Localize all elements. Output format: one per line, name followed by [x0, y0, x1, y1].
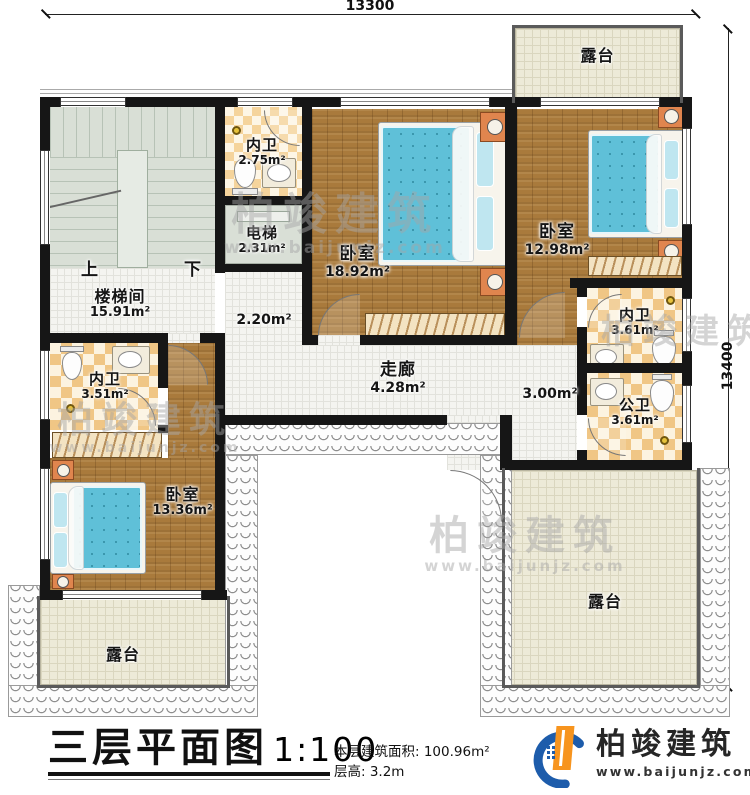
- window: [40, 468, 50, 560]
- wall: [682, 99, 692, 128]
- room-label-hall: 3.00m²: [510, 386, 590, 402]
- logo-url: www.baijunjz.com: [596, 764, 750, 779]
- wall: [202, 590, 227, 600]
- logo-brand: 柏竣建筑: [596, 730, 736, 760]
- room-area: 3.00m²: [510, 386, 590, 402]
- wall: [302, 97, 312, 345]
- lamp-icon: [487, 119, 503, 135]
- roof-tiles: [8, 685, 258, 717]
- room-label-bedroom-left: 卧室 13.36m²: [130, 485, 235, 519]
- wall: [215, 264, 312, 272]
- room-name: 露台: [63, 645, 183, 664]
- wall: [215, 196, 310, 205]
- window: [682, 298, 692, 352]
- bed-blanket: [646, 134, 662, 234]
- room-area: 2.31m²: [222, 242, 302, 256]
- eave-line: [40, 86, 512, 96]
- room-name: 公卫: [600, 396, 670, 414]
- room-area: 15.91m²: [60, 306, 180, 321]
- dimension-line-top: [45, 14, 697, 15]
- room-label-stairwell: 楼梯间 15.91m²: [60, 287, 180, 321]
- room-name: 露台: [545, 592, 665, 611]
- pillow: [53, 532, 68, 568]
- room-name: 露台: [515, 46, 680, 65]
- room-label-bedroom-right: 卧室 12.98m²: [502, 222, 612, 258]
- wardrobe: [52, 432, 162, 458]
- wall: [225, 415, 447, 425]
- shower-icon: [666, 296, 675, 305]
- toilet-icon: [232, 188, 258, 195]
- wall: [158, 425, 168, 433]
- room-name: 楼梯间: [60, 287, 180, 306]
- nightstand: [480, 112, 508, 142]
- parapet: [37, 596, 40, 688]
- wardrobe: [588, 256, 682, 276]
- parapet: [697, 468, 700, 688]
- room-area: 12.98m²: [502, 242, 612, 258]
- wall: [40, 590, 62, 600]
- window: [62, 590, 202, 600]
- wall: [40, 97, 50, 150]
- floor-terrace-right: [505, 470, 697, 685]
- floor-lobby-220: [225, 264, 302, 345]
- parapet: [502, 468, 505, 688]
- room-area: 3.61m²: [600, 414, 670, 428]
- pillow: [664, 140, 679, 180]
- room-name: 电梯: [222, 224, 302, 242]
- room-name: 内卫: [65, 370, 145, 388]
- dimension-right-value: 13400: [720, 336, 736, 396]
- down-text: 下: [178, 260, 208, 280]
- window: [682, 128, 692, 225]
- room-label-lobby: 2.20m²: [228, 312, 300, 328]
- window: [540, 97, 660, 107]
- wall: [505, 97, 517, 345]
- window: [40, 150, 50, 245]
- parapet: [227, 596, 230, 688]
- stair-treads: [148, 157, 215, 268]
- nightstand: [52, 460, 74, 480]
- parapet: [37, 685, 230, 688]
- floor-plan: 13300 13400: [0, 0, 750, 795]
- room-area: 2.75m²: [222, 154, 302, 168]
- floor-hall-300: [512, 345, 577, 470]
- window: [40, 350, 50, 420]
- room-name: 卧室: [300, 244, 415, 264]
- wall: [302, 335, 318, 345]
- wall: [40, 333, 165, 343]
- window: [237, 97, 293, 107]
- roof-tiles: [480, 685, 730, 717]
- bed-blanket: [68, 486, 84, 570]
- window: [340, 97, 490, 107]
- window: [682, 385, 692, 443]
- lamp-icon: [57, 464, 70, 477]
- window: [60, 97, 126, 107]
- lamp-icon: [664, 109, 679, 124]
- plan-info: 本层建筑面积: 100.96m² 层高: 3.2m: [334, 742, 524, 783]
- room-area: 3.51m²: [65, 388, 145, 402]
- title-underline: [48, 772, 330, 776]
- room-area: 3.61m²: [600, 324, 670, 338]
- up-text: 上: [75, 260, 105, 280]
- wall: [293, 97, 340, 107]
- pillow: [664, 188, 679, 228]
- stair-well: [117, 150, 148, 268]
- dimension-top-value: 13300: [300, 0, 440, 14]
- room-label-bath-left: 内卫 3.51m²: [65, 370, 145, 402]
- room-area: 18.92m²: [300, 264, 415, 280]
- stair-treads: [50, 157, 117, 268]
- wall: [215, 333, 225, 600]
- lamp-icon: [487, 274, 503, 290]
- plan-title: 三层平面图: [48, 725, 268, 771]
- floor-terrace-top: [515, 28, 680, 103]
- wall: [40, 420, 50, 468]
- plan-height-info: 层高: 3.2m: [334, 762, 524, 782]
- room-name: 卧室: [502, 222, 612, 242]
- parapet: [502, 685, 700, 688]
- roof-tiles: [225, 423, 512, 455]
- room-label-bath-top: 内卫 2.75m²: [222, 136, 302, 168]
- shower-icon: [66, 404, 75, 413]
- wall: [158, 333, 168, 388]
- room-label-bath-public: 公卫 3.61m²: [600, 396, 670, 428]
- shower-icon: [660, 436, 669, 445]
- room-area: 2.20m²: [228, 312, 300, 328]
- pillow: [53, 492, 68, 528]
- lamp-icon: [57, 576, 69, 588]
- wall: [577, 363, 692, 373]
- room-name: 卧室: [130, 485, 235, 504]
- stair-up-label: 上: [75, 260, 105, 280]
- floor-door-gap: [318, 335, 360, 345]
- nightstand: [658, 104, 684, 128]
- floor-terrace-left: [40, 598, 227, 685]
- parapet: [512, 25, 683, 28]
- room-label-terrace-top: 露台: [515, 46, 680, 65]
- wall: [360, 335, 512, 345]
- wall: [577, 288, 587, 297]
- room-area: 13.36m²: [130, 504, 235, 519]
- room-name: 内卫: [222, 136, 302, 154]
- shower-icon: [232, 126, 241, 135]
- room-label-bath-right: 内卫 3.61m²: [600, 306, 670, 338]
- elevator-car: [237, 211, 290, 222]
- logo-icon: [533, 720, 589, 788]
- wall: [505, 460, 692, 470]
- room-name: 内卫: [600, 306, 670, 324]
- roof-tiles: [700, 468, 730, 717]
- room-label-elevator: 电梯 2.31m²: [222, 224, 302, 256]
- room-label-terrace-left: 露台: [63, 645, 183, 664]
- floor-door-gap: [165, 333, 200, 343]
- title-underline-thin: [48, 779, 330, 780]
- parapet: [680, 25, 683, 103]
- room-name: 走廊: [353, 360, 443, 380]
- plan-title-block: 三层平面图 1:100: [48, 728, 378, 769]
- room-label-terrace-right: 露台: [545, 592, 665, 611]
- stair-down-label: 下: [178, 260, 208, 280]
- wall: [570, 278, 692, 288]
- sink-basin-icon: [118, 351, 142, 368]
- nightstand: [52, 574, 74, 589]
- plan-area-info: 本层建筑面积: 100.96m²: [334, 742, 524, 762]
- wardrobe: [365, 313, 505, 337]
- room-label-corridor: 走廊 4.28m²: [353, 360, 443, 396]
- pillow: [476, 196, 494, 251]
- bed-blanket: [452, 126, 474, 262]
- room-label-bedroom-main: 卧室 18.92m²: [300, 244, 415, 280]
- nightstand: [480, 268, 508, 296]
- room-area: 4.28m²: [353, 380, 443, 396]
